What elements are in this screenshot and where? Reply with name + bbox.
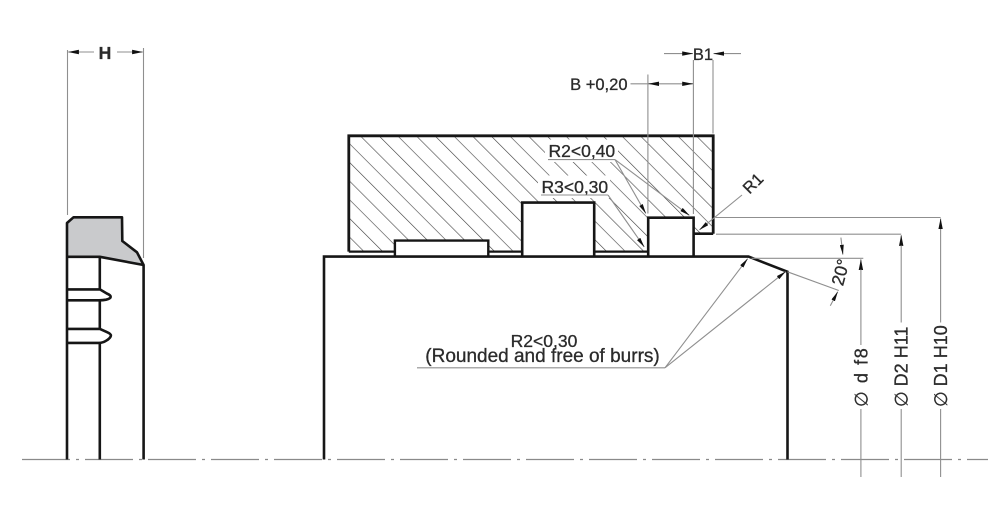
svg-text:∅ d f8: ∅ d f8 [851,347,871,407]
svg-text:R3<0,30: R3<0,30 [542,177,609,197]
svg-text:20°: 20° [827,257,853,288]
svg-text:∅ D1 H10: ∅ D1 H10 [931,325,951,407]
svg-text:R1: R1 [740,170,768,198]
svg-text:R2<0,40: R2<0,40 [549,141,616,161]
svg-text:B1: B1 [693,46,713,64]
svg-text:(Rounded and free of burrs): (Rounded and free of burrs) [425,346,659,367]
svg-text:B +0,20: B +0,20 [570,76,627,94]
svg-text:∅ D2 H11: ∅ D2 H11 [892,327,912,407]
svg-text:H: H [99,43,112,63]
